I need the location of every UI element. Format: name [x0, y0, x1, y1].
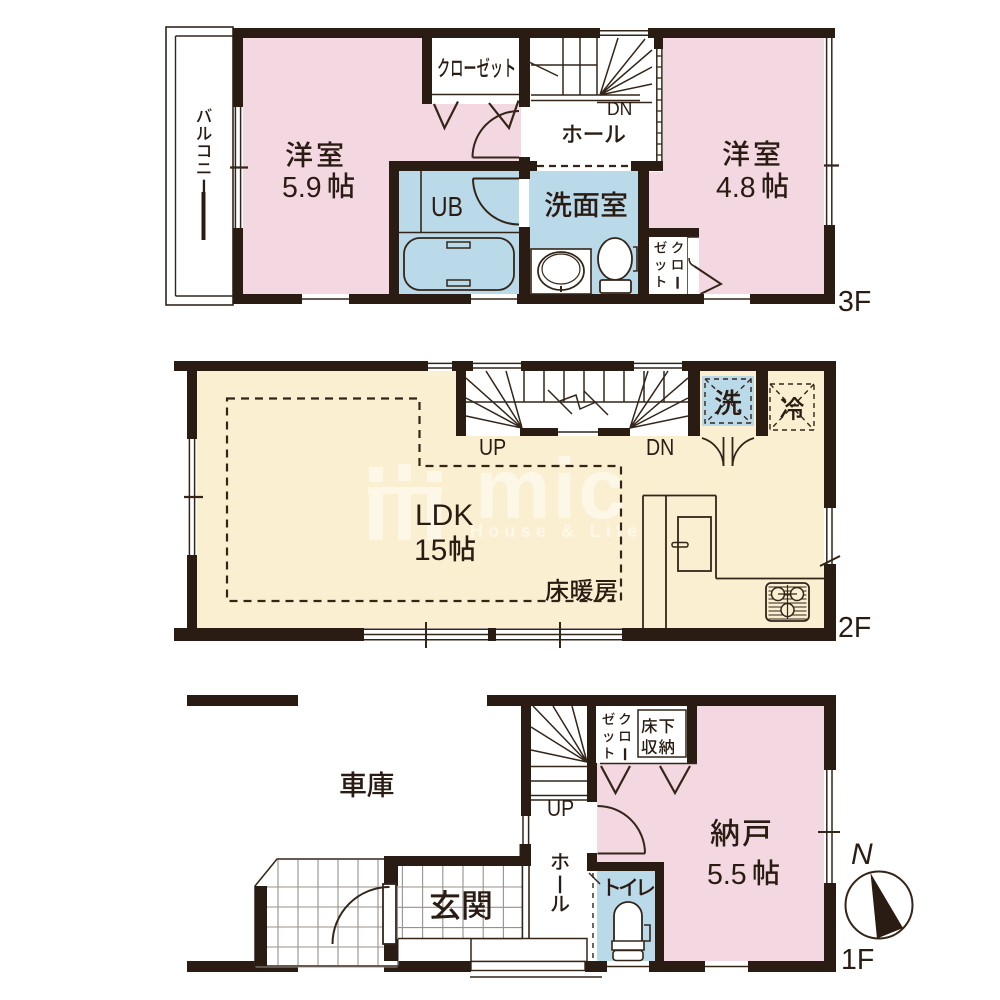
svg-text:5.9: 5.9: [282, 172, 322, 204]
svg-text:UP: UP: [547, 796, 574, 822]
svg-text:LDK: LDK: [415, 499, 473, 532]
svg-text:UP: UP: [479, 435, 506, 461]
svg-text:5.5: 5.5: [707, 859, 747, 891]
svg-text:N: N: [851, 838, 873, 871]
svg-text:DN: DN: [607, 99, 632, 120]
svg-text:3F: 3F: [838, 286, 871, 318]
svg-text:1F: 1F: [841, 944, 874, 976]
svg-text:DN: DN: [646, 435, 674, 461]
svg-text:4.8: 4.8: [716, 172, 756, 204]
svg-text:2F: 2F: [838, 612, 871, 644]
svg-text:House & Life: House & Life: [470, 521, 642, 541]
svg-text:15: 15: [414, 534, 447, 567]
svg-text:UB: UB: [431, 192, 463, 223]
